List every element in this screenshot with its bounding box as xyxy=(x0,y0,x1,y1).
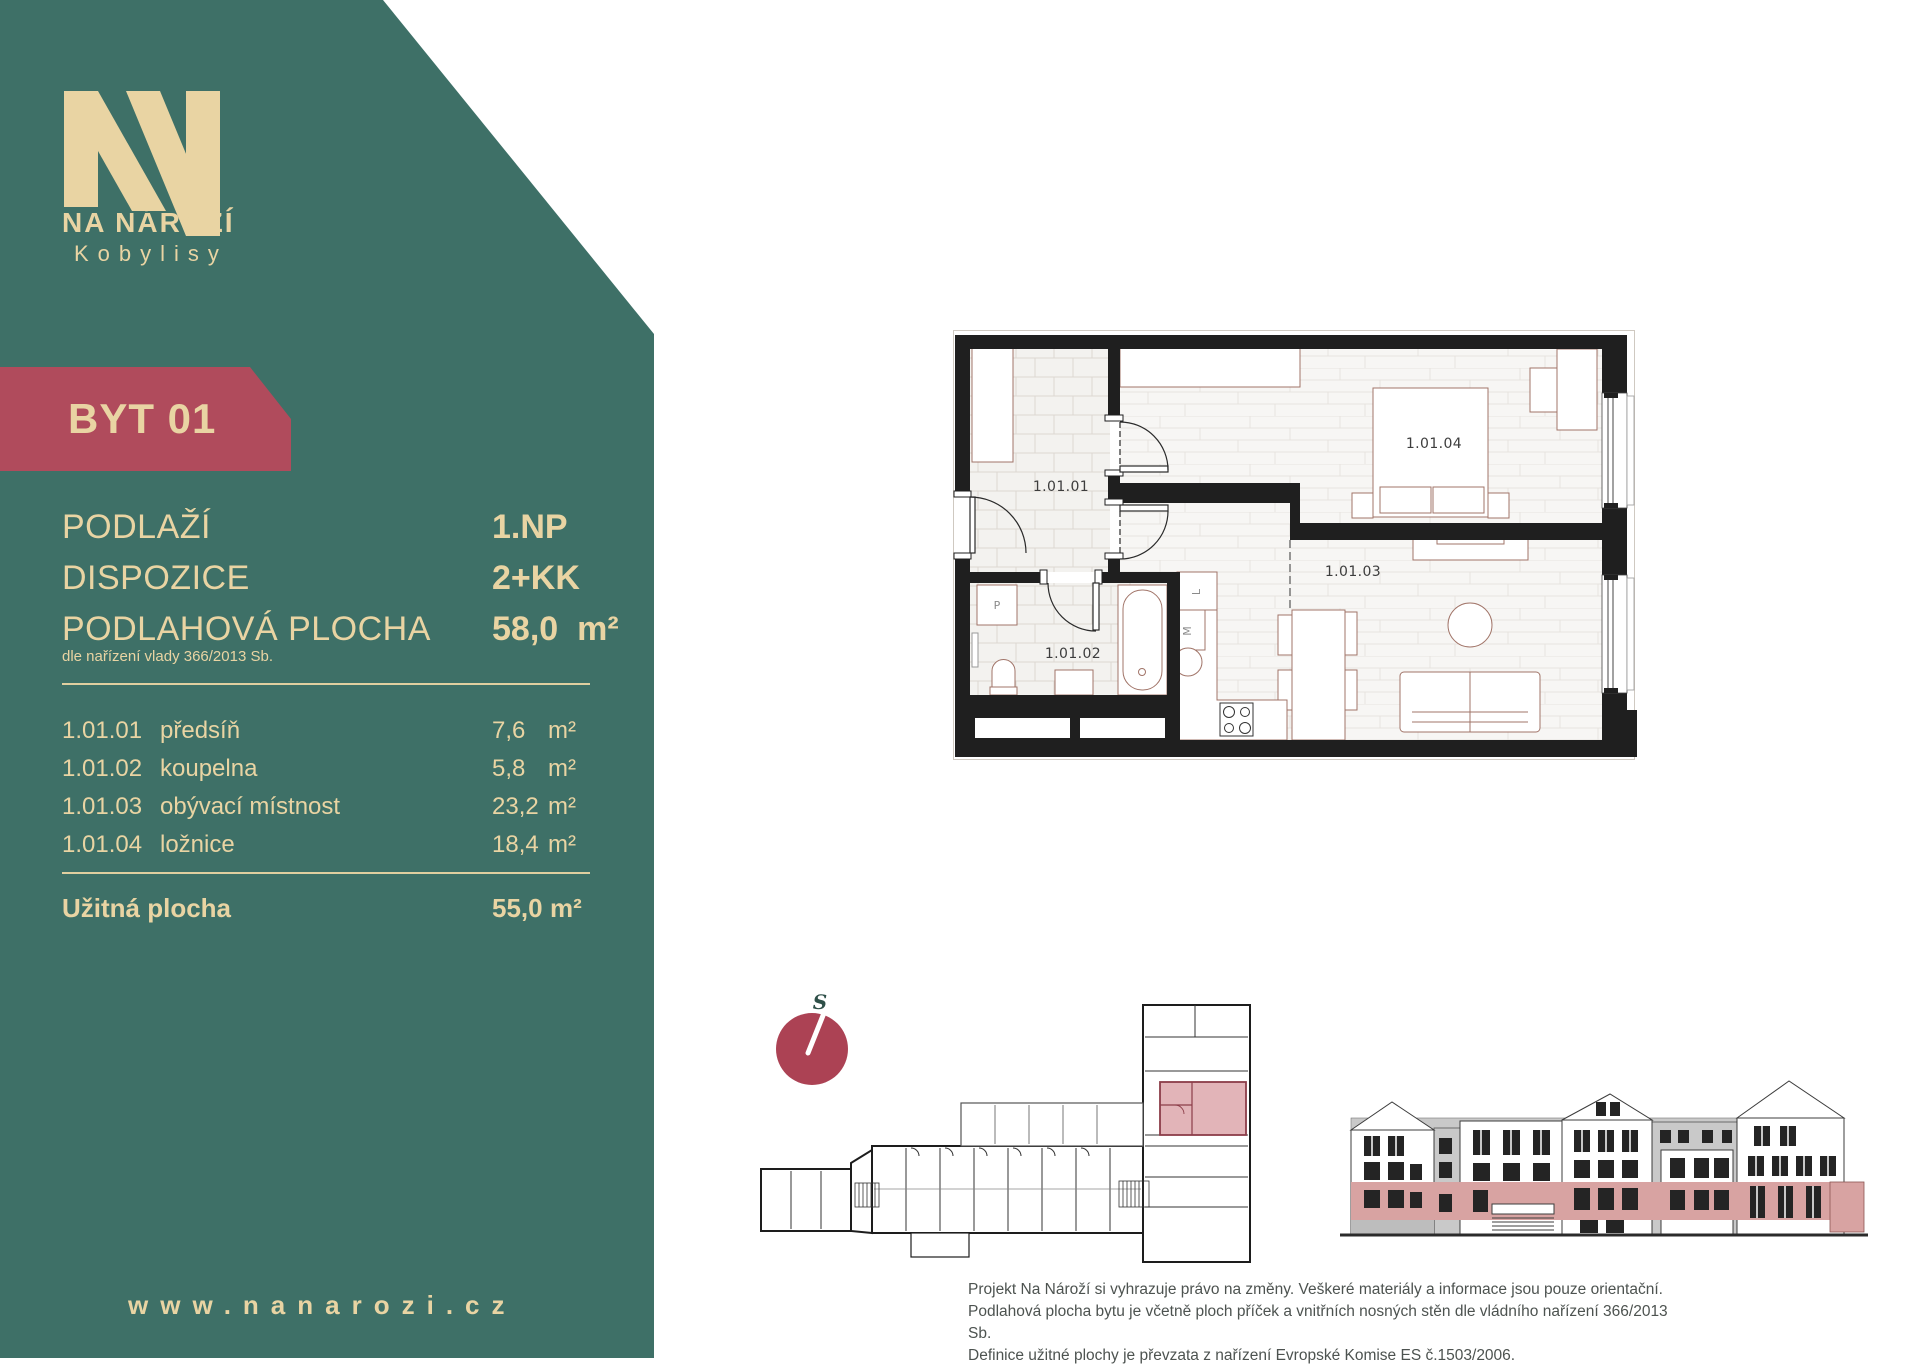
brand-city: Kobylisy xyxy=(74,241,228,267)
floorplan-label-bathroom: 1.01.02 xyxy=(1045,646,1101,662)
window-living xyxy=(1602,575,1634,693)
bedroom-wardrobe xyxy=(1557,349,1597,430)
wall-niche xyxy=(1080,718,1165,738)
summary-layout-label: DISPOZICE xyxy=(62,559,250,598)
summary-area-label: PODLAHOVÁ PLOCHA xyxy=(62,610,431,649)
floorplan-label-living: 1.01.03 xyxy=(1325,564,1381,580)
overview-highlighted-unit xyxy=(1160,1082,1246,1135)
floorplan-label-hall: 1.01.01 xyxy=(1033,479,1089,495)
disclaimer-line-3: Definice užitné plochy je převzata z nař… xyxy=(968,1345,1668,1367)
disclaimer-line-1: Projekt Na Nároží si vyhrazuje právo na … xyxy=(968,1279,1668,1301)
chair xyxy=(1345,612,1357,655)
door-leaf xyxy=(1093,583,1099,630)
total-label: Užitná plocha xyxy=(62,893,231,924)
bedroom-desk xyxy=(1530,368,1557,412)
bed-pillow xyxy=(1380,487,1431,513)
compass-icon: S xyxy=(776,990,848,1085)
room-code: 1.01.02 xyxy=(62,755,142,783)
pantry-letter: L xyxy=(1190,588,1203,595)
wall-niche xyxy=(975,718,1070,738)
chair xyxy=(1278,615,1292,655)
nightstand xyxy=(1488,493,1509,518)
elevation-ground-floor-band xyxy=(1351,1182,1844,1220)
washer-letter: P xyxy=(994,599,1001,612)
summary-layout-value: 2+KK xyxy=(492,559,580,598)
total-unit: m² xyxy=(550,893,582,924)
stove xyxy=(1220,703,1253,736)
summary-floor-label: PODLAŽÍ xyxy=(62,508,211,547)
divider-bottom xyxy=(62,872,590,874)
bath-cabinet xyxy=(1055,670,1093,695)
building-overview-plan: S xyxy=(755,975,1255,1275)
bedroom-cabinet xyxy=(1120,348,1300,387)
room-name: ložnice xyxy=(160,831,235,859)
room-unit: m² xyxy=(548,831,576,859)
room-code: 1.01.04 xyxy=(62,831,142,859)
round-table xyxy=(1448,603,1492,647)
bathtub-drain xyxy=(1139,669,1146,676)
room-code: 1.01.01 xyxy=(62,717,142,745)
window-bedroom xyxy=(1602,393,1634,508)
compass-north-label: S xyxy=(813,990,827,1014)
brochure-page: { "colors": { "teal": "#3E7067", "cream"… xyxy=(0,0,1920,1358)
summary-area-number: 58,0 xyxy=(492,610,558,648)
room-area: 7,6 xyxy=(492,717,525,745)
disclaimer-line-2: Podlahová plocha bytu je včetně ploch př… xyxy=(968,1301,1668,1345)
room-unit: m² xyxy=(548,755,576,783)
elevation-basement xyxy=(1351,1220,1434,1235)
summary-note: dle nařízení vlady 366/2013 Sb. xyxy=(62,648,273,665)
room-area: 5,8 xyxy=(492,755,525,783)
summary-area-value: 58,0 m² xyxy=(492,610,619,649)
apartment-floorplan: P L M xyxy=(950,320,1650,765)
door-leaf xyxy=(1120,505,1168,511)
radiator xyxy=(972,633,978,667)
bed-pillow xyxy=(1433,487,1484,513)
hall-wardrobe xyxy=(972,348,1013,462)
website-text: www.nanarozi.cz xyxy=(128,1290,517,1321)
unit-badge: BYT 01 xyxy=(0,367,291,471)
elevation-pink-block xyxy=(1830,1182,1864,1232)
divider-top xyxy=(62,683,590,685)
door-leaf xyxy=(1120,466,1168,472)
nightstand xyxy=(1352,493,1373,518)
entrance-opening xyxy=(955,497,970,553)
room-name: koupelna xyxy=(160,755,257,783)
floorplan-label-bedroom: 1.01.04 xyxy=(1406,436,1462,452)
dining-table xyxy=(1292,610,1345,740)
room-code: 1.01.03 xyxy=(62,793,142,821)
unit-badge-label: BYT 01 xyxy=(68,395,216,443)
fridge-letter: M xyxy=(1181,626,1194,636)
room-name: předsíň xyxy=(160,717,240,745)
total-area: 55,0 xyxy=(492,893,543,924)
room-name: obývací místnost xyxy=(160,793,340,821)
room-area: 18,4 xyxy=(492,831,539,859)
disclaimer: Projekt Na Nároží si vyhrazuje právo na … xyxy=(968,1279,1668,1367)
summary-floor-value: 1.NP xyxy=(492,508,568,547)
toilet xyxy=(990,660,1017,695)
building-elevation xyxy=(1340,1068,1880,1253)
chair xyxy=(1345,670,1357,710)
brand-name: NA NÁROŽÍ xyxy=(62,207,235,239)
room-unit: m² xyxy=(548,717,576,745)
room-area: 23,2 xyxy=(492,793,539,821)
entrance-door-leaf xyxy=(970,497,975,553)
summary-area-unit: m² xyxy=(577,610,619,648)
sidebar: NA NÁROŽÍ Kobylisy BYT 01 PODLAŽÍ 1.NP D… xyxy=(0,0,654,1358)
room-unit: m² xyxy=(548,793,576,821)
